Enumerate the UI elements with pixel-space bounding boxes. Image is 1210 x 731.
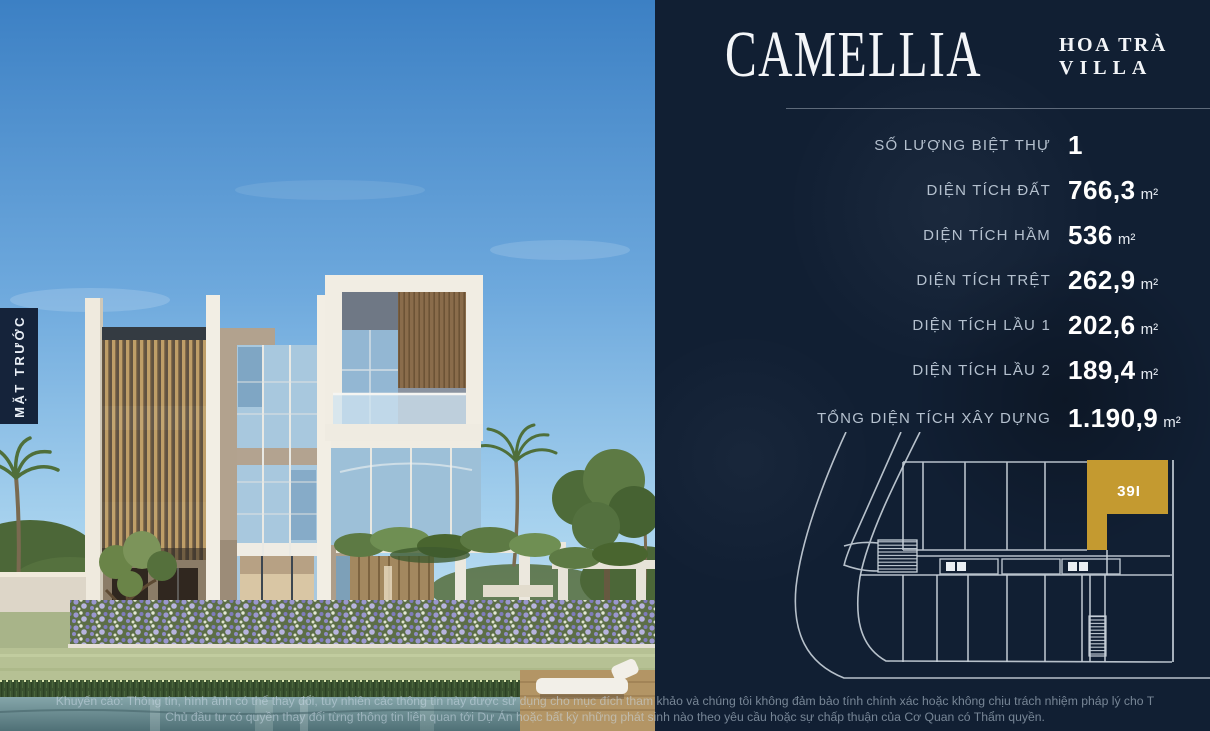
spec-unit: m² [1141,186,1159,203]
brand-subtitle: HOA TRÀ VILLA [1059,34,1168,80]
spec-value: 202,6 [1068,310,1136,340]
spec-label: DIỆN TÍCH LẦU 2 [673,362,1051,379]
spec-label: SỐ LƯỢNG BIỆT THỰ [673,137,1051,154]
lot-number-label: 39I [1117,483,1141,500]
site-plan: 39I [760,432,1210,692]
map-ramp [878,540,917,572]
brochure-page: MẶT TRƯỚC CAMELLIA HOA TRÀ VILLA SỐ LƯỢN… [0,0,1210,731]
spec-label: DIỆN TÍCH HẦM [673,227,1051,244]
spec-row-basement-area: DIỆN TÍCH HẦM 536m² [673,213,1210,258]
spec-value: 1 [1068,130,1083,160]
title-divider [786,108,1210,109]
map-upper-lots [903,462,1087,550]
spec-row-land-area: DIỆN TÍCH ĐẤT 766,3m² [673,168,1210,213]
brand-subtitle-bottom: VILLA [1059,56,1168,80]
brand-subtitle-top: HOA TRÀ [1059,34,1168,56]
spec-row-quantity: SỐ LƯỢNG BIỆT THỰ 1 [673,123,1210,168]
flower-bed [68,600,655,650]
spec-unit: m² [1141,366,1159,383]
spec-table: SỐ LƯỢNG BIỆT THỰ 1 DIỆN TÍCH ĐẤT 766,3m… [673,123,1210,441]
spec-row-floor2-area: DIỆN TÍCH LẦU 2 189,4m² [673,348,1210,393]
spec-row-ground-floor-area: DIỆN TÍCH TRỆT 262,9m² [673,258,1210,303]
spec-row-floor1-area: DIỆN TÍCH LẦU 1 202,6m² [673,303,1210,348]
spec-value: 1.190,9 [1068,403,1158,433]
brand-title: CAMELLIA [725,22,982,88]
spec-unit: m² [1118,231,1136,248]
front-view-badge: MẶT TRƯỚC [0,308,38,424]
spec-value: 766,3 [1068,175,1136,205]
map-corridor-markers [946,562,1088,571]
site-plan-map: 39I [760,432,1210,692]
villa-illustration [0,0,655,731]
spec-unit: m² [1141,321,1159,338]
spec-label: TỔNG DIỆN TÍCH XÂY DỰNG [673,410,1051,427]
spec-label: DIỆN TÍCH ĐẤT [673,182,1051,199]
spec-label: DIỆN TÍCH LẦU 1 [673,317,1051,334]
spec-unit: m² [1141,276,1159,293]
villa-rendering: MẶT TRƯỚC [0,0,655,731]
info-panel: CAMELLIA HOA TRÀ VILLA SỐ LƯỢNG BIỆT THỰ… [655,0,1210,731]
front-view-label: MẶT TRƯỚC [12,315,27,418]
highlighted-lot-39i: 39I [1087,460,1168,550]
spec-value: 189,4 [1068,355,1136,385]
spec-unit: m² [1163,414,1181,431]
spec-value: 262,9 [1068,265,1136,295]
spec-label: DIỆN TÍCH TRỆT [673,272,1051,289]
map-ramp2 [1089,616,1106,656]
spec-value: 536 [1068,220,1113,250]
